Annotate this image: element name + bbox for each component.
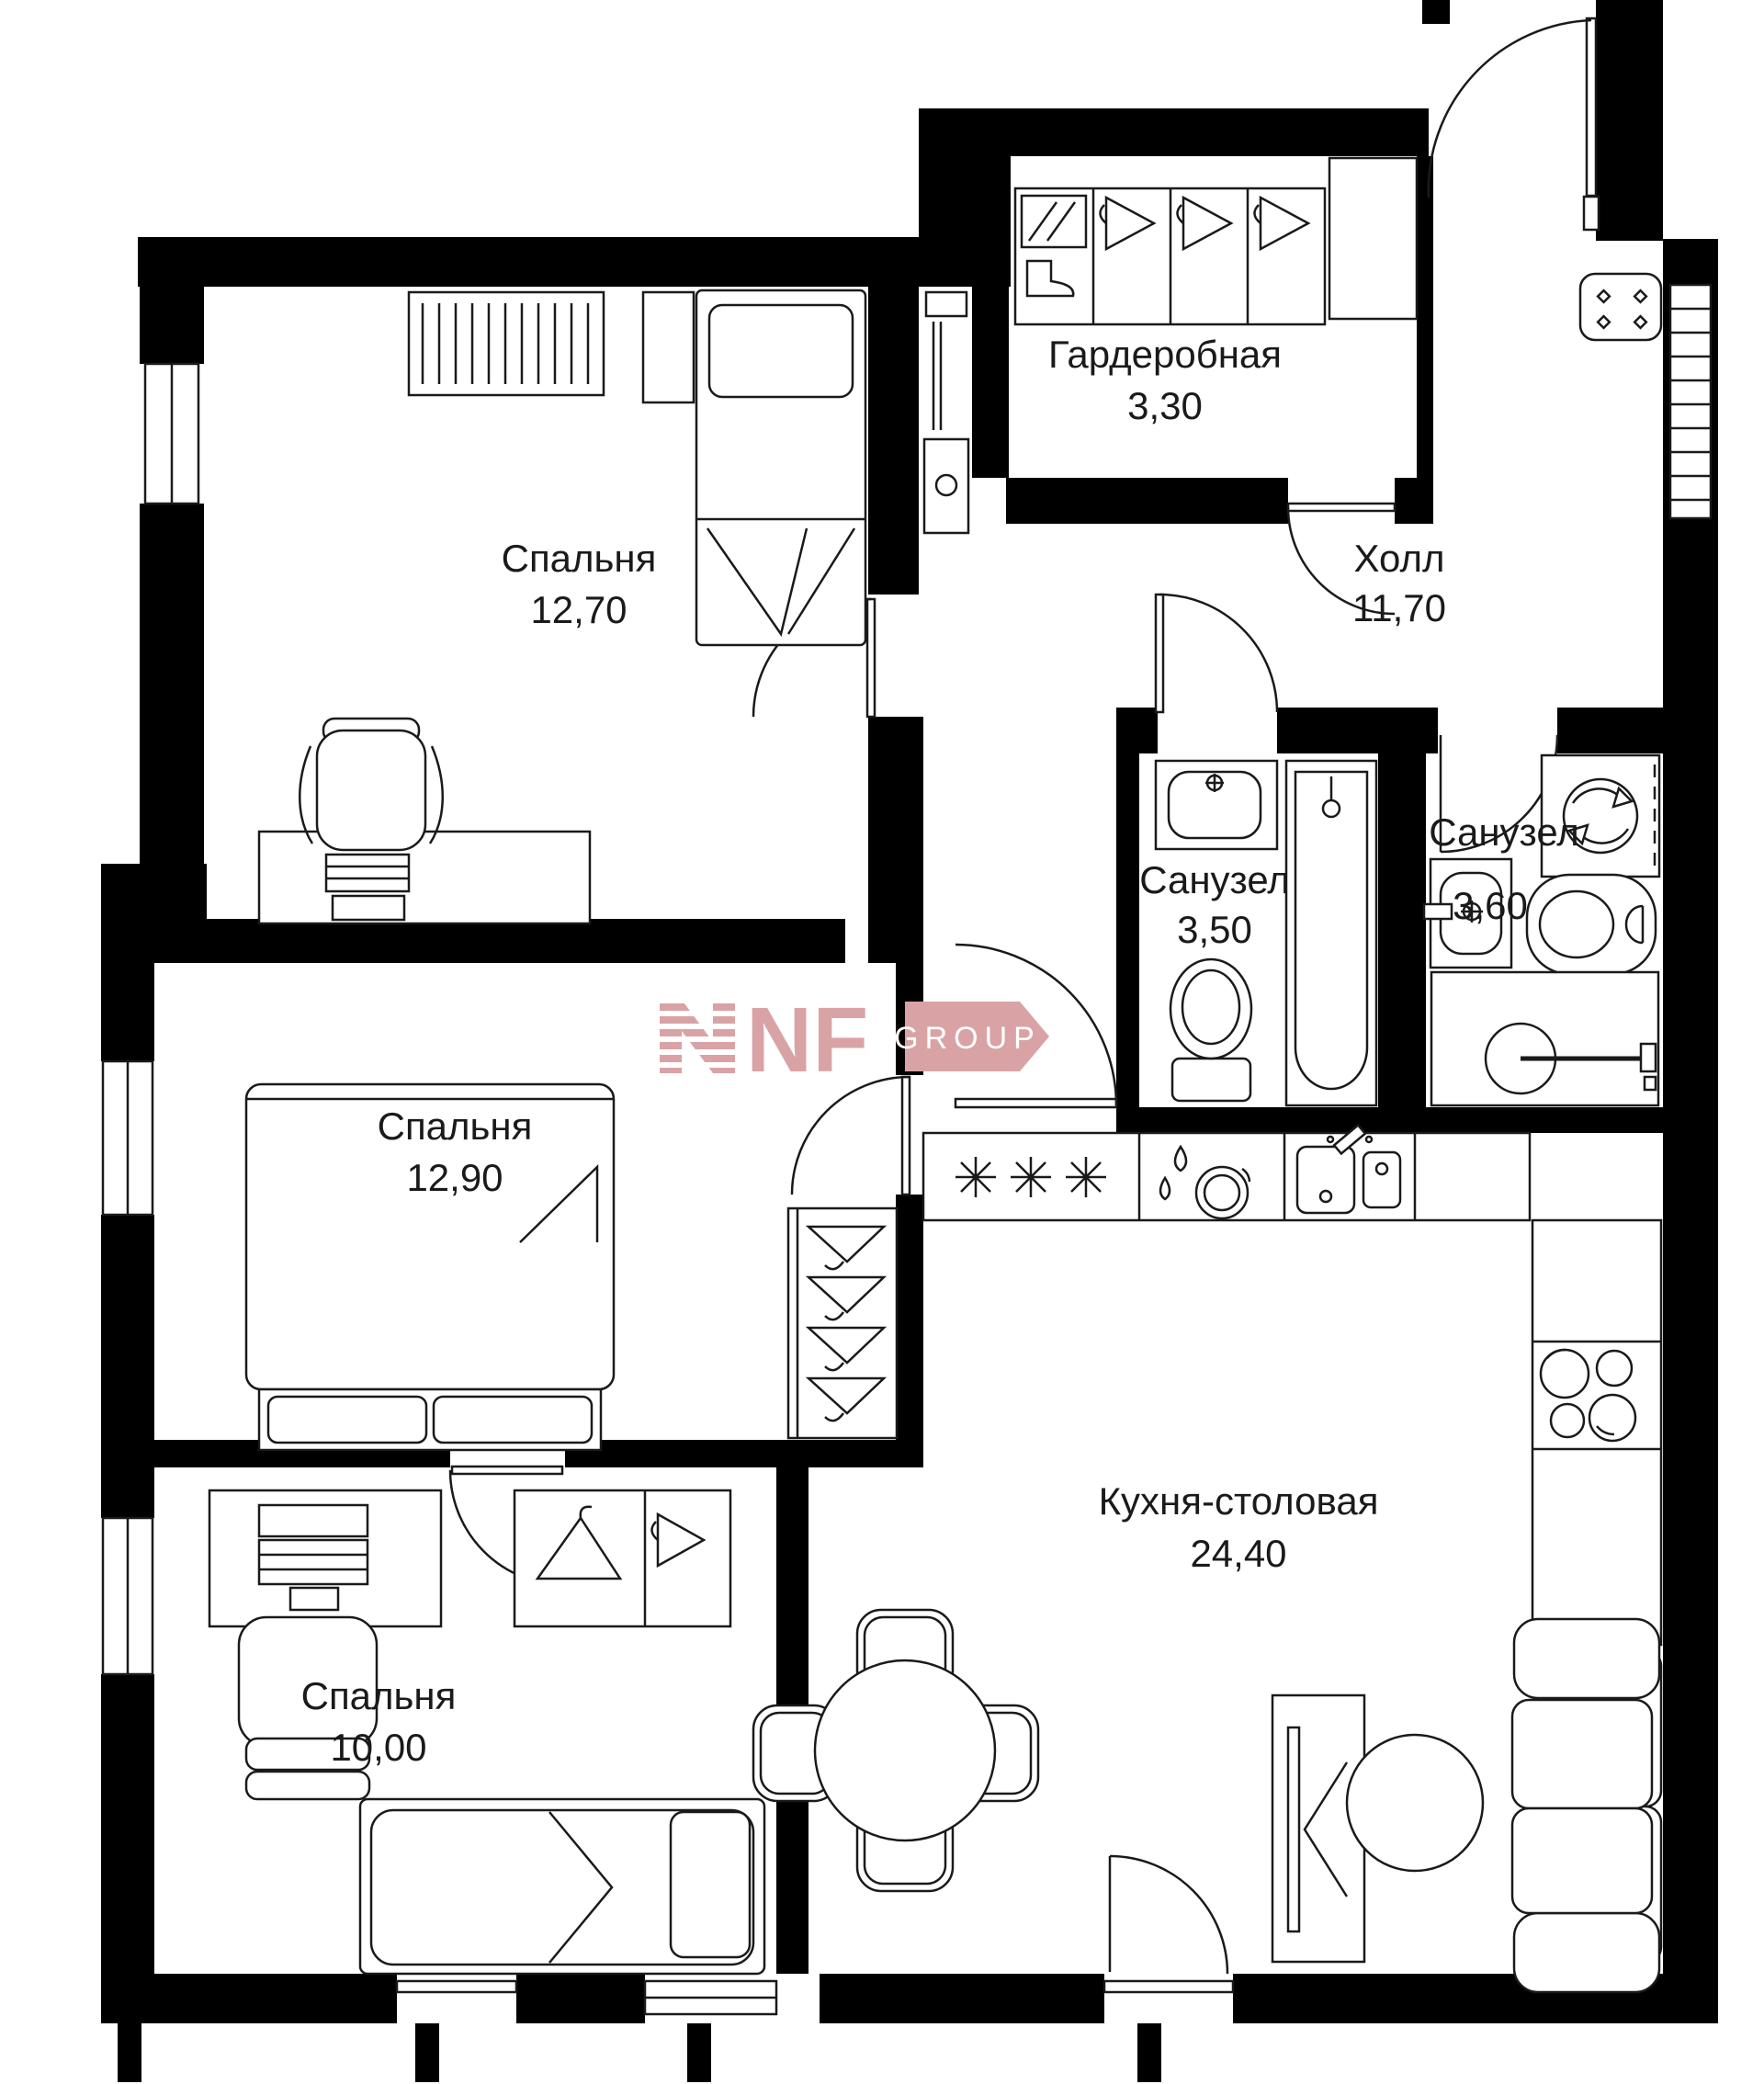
sofa: [1512, 1619, 1661, 1992]
label-bathroom-1: Санузел 3,50: [1139, 858, 1290, 951]
svg-text:3,30: 3,30: [1127, 384, 1203, 427]
svg-text:Санузел: Санузел: [1429, 810, 1579, 854]
hall-furniture: [1580, 274, 1661, 340]
entry-door: [1429, 18, 1599, 230]
logo-n-striped-mark: [660, 1000, 735, 1073]
floor-plan-page: NF GROUP Спальня 12,70 Гардеробная 3,30 …: [0, 0, 1764, 2084]
svg-text:Спальня: Спальня: [301, 1674, 457, 1717]
window-bedroom-3: [103, 1518, 153, 1674]
wardrobe-furniture: [1015, 158, 1417, 324]
floor-plan-svg: NF GROUP Спальня 12,70 Гардеробная 3,30 …: [0, 0, 1764, 2084]
nightstand: [643, 292, 694, 402]
svg-text:Спальня: Спальня: [502, 537, 657, 580]
sink-1: [1156, 761, 1277, 849]
svg-text:3,60: 3,60: [1453, 884, 1528, 927]
svg-text:Санузел: Санузел: [1139, 858, 1290, 901]
desk-3: [209, 1490, 441, 1626]
shower-area: [1431, 972, 1658, 1105]
wardrobe-3: [514, 1490, 730, 1626]
kitchen-counter-top: [923, 1125, 1530, 1220]
window-bedroom-3-bottom: [645, 1981, 776, 2014]
label-kitchen-dining: Кухня-столовая 24,40: [1099, 1479, 1379, 1575]
kitchen-balcony-door: [1104, 1856, 1233, 1992]
desk: [259, 719, 590, 923]
nf-group-logo: NF GROUP: [660, 989, 1049, 1092]
bathroom-2-furniture: [1424, 755, 1659, 1105]
label-hall: Холл 11,70: [1352, 537, 1446, 629]
bathtub: [1286, 761, 1376, 1105]
logo-nf-letters: NF: [746, 989, 868, 1092]
bed-double: [696, 290, 865, 645]
toilet-1: [1170, 959, 1251, 1101]
logo-group-text: GROUP: [894, 1021, 1041, 1056]
svg-text:Спальня: Спальня: [378, 1104, 533, 1148]
coffee-table: [1347, 1735, 1483, 1871]
svg-text:Кухня-столовая: Кухня-столовая: [1099, 1479, 1379, 1523]
window-bedroom-2: [103, 1061, 153, 1215]
ottoman: [1580, 274, 1661, 340]
tv-stand: [1272, 1695, 1364, 1962]
svg-text:10,00: 10,00: [330, 1726, 426, 1769]
shaft-ladder: [1670, 285, 1711, 518]
bedroom-2-door: [792, 1077, 910, 1195]
bed-single: [360, 1799, 764, 1974]
label-wardrobe: Гардеробная 3,30: [1048, 333, 1282, 427]
toilet-2: [1527, 875, 1656, 974]
window-bedroom-1: [145, 364, 198, 504]
kitchen-counter-right: [1532, 1220, 1661, 1645]
label-bedroom-1: Спальня 12,70: [502, 537, 657, 631]
svg-text:24,40: 24,40: [1190, 1532, 1286, 1575]
svg-text:Гардеробная: Гардеробная: [1048, 333, 1282, 376]
closet-hangers: [788, 1208, 897, 1438]
svg-text:3,50: 3,50: [1177, 908, 1252, 951]
bathroom-1-door: [1156, 595, 1277, 712]
svg-text:12,90: 12,90: [406, 1156, 503, 1199]
dresser: [409, 292, 604, 395]
svg-text:12,70: 12,70: [530, 588, 627, 631]
vestibule-furniture: [924, 292, 968, 533]
bedroom-2-furniture: [246, 1084, 897, 1450]
bedroom-3-furniture: [209, 1490, 764, 1974]
svg-text:11,70: 11,70: [1352, 586, 1446, 629]
svg-text:Холл: Холл: [1354, 537, 1445, 580]
